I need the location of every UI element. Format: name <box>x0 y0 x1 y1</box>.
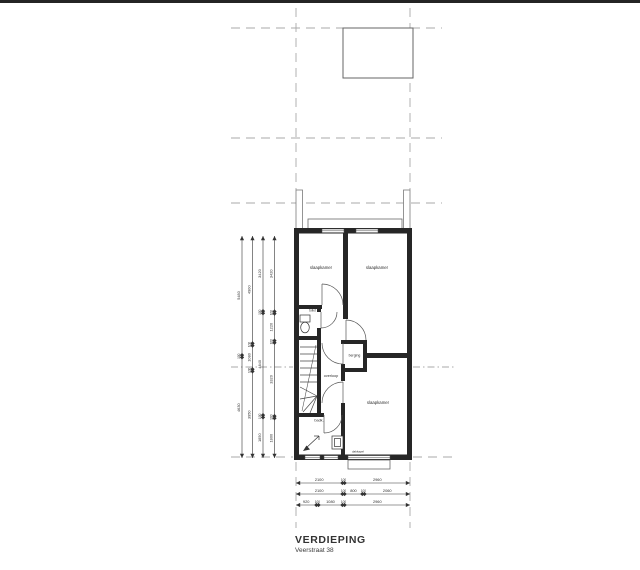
room-label: badk. <box>314 419 323 423</box>
dimension-label: 100 <box>258 413 262 419</box>
dimension-label: 920 <box>303 499 310 504</box>
dimension-label: 100 <box>361 489 367 493</box>
dimension-label: 1800 <box>269 433 274 442</box>
dimension-label: 100 <box>341 478 347 482</box>
dimension-label: 4640 <box>257 359 262 368</box>
dimension-label: 1080 <box>326 499 335 504</box>
dimension-label: 100 <box>315 500 321 504</box>
dimension-label: 4630 <box>236 403 241 412</box>
dimension-label: 100 <box>270 414 274 420</box>
dimension-label: 3420 <box>269 269 274 278</box>
dimension-label: 100 <box>248 367 252 373</box>
dimension-label: 4900 <box>247 285 252 294</box>
dimension-label: 5480 <box>236 290 241 299</box>
dimension-label: 100 <box>237 353 241 359</box>
dimension-label: 2100 <box>315 477 324 482</box>
dimension-label: 1080 <box>247 352 252 361</box>
room-label: berging <box>349 354 361 358</box>
dimension-label: 100 <box>270 339 274 345</box>
room-label: dakkapel <box>352 450 364 454</box>
room-label: toilet <box>309 309 316 313</box>
roof-edge-outline <box>308 219 402 229</box>
dimension-label: 2960 <box>373 477 382 482</box>
dimension-label: 100 <box>248 342 252 348</box>
dimension-label: 100 <box>341 489 347 493</box>
dimension-label: 1850 <box>257 433 262 442</box>
room-label: slaapkamer <box>366 265 389 270</box>
outbuilding-outline <box>343 28 413 78</box>
room-label: slaapkamer <box>367 400 390 405</box>
room-label: slaapkamer <box>310 265 333 270</box>
title-block: VERDIEPING Veerstraat 38 <box>295 534 366 554</box>
dimension-label: 3950 <box>247 410 252 419</box>
dimension-label: 3320 <box>269 374 274 383</box>
dimension-label: 100 <box>341 500 347 504</box>
wc-cistern <box>300 315 310 322</box>
dimension-label: 100 <box>258 309 262 315</box>
dimension-label: 800 <box>350 488 357 493</box>
drawing-title: VERDIEPING <box>295 534 366 546</box>
dimension-label: 100 <box>270 310 274 316</box>
stairs <box>300 345 317 413</box>
dimension-label: 3420 <box>257 268 262 277</box>
floorplan-canvas: 5480100463049001001080100395034201004640… <box>0 0 640 570</box>
drawing-subtitle: Veerstraat 38 <box>295 547 366 554</box>
dormer-outline <box>348 460 390 469</box>
sink <box>332 436 343 449</box>
dimension-label: 2100 <box>315 488 324 493</box>
wc-bowl <box>301 322 310 333</box>
dimension-label: 2060 <box>383 488 392 493</box>
floorplan-page: 5480100463049001001080100395034201004640… <box>0 0 640 570</box>
room-labels: slaapkamerslaapkamertoiletoverloopbergin… <box>309 265 390 454</box>
dimension-label: 1220 <box>269 322 274 331</box>
room-label: overloop <box>324 374 339 378</box>
dimension-label: 2960 <box>373 499 382 504</box>
